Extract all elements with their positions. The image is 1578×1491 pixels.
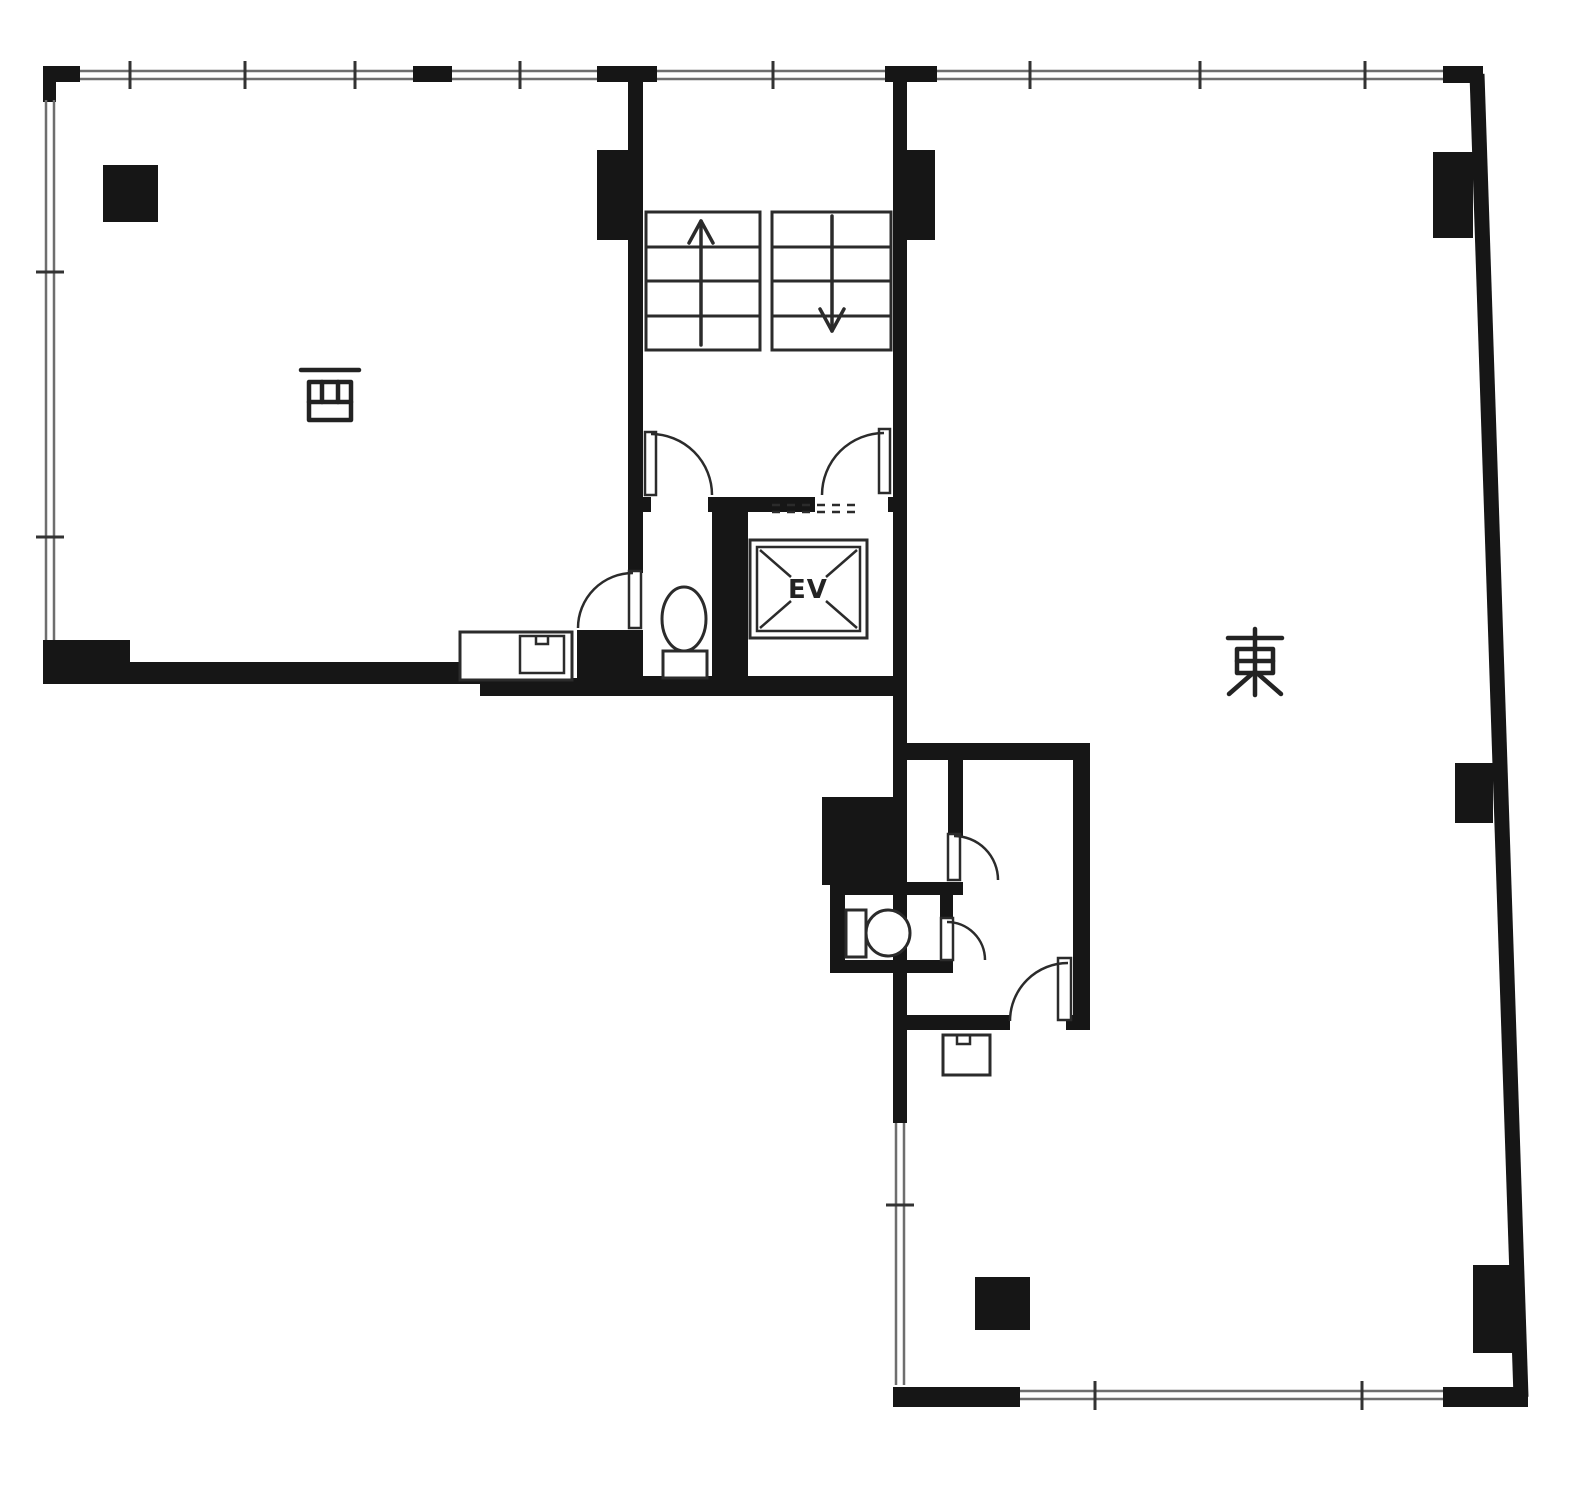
door-annex-main: [1010, 958, 1071, 1021]
toilet-annex-icon: [846, 910, 910, 957]
toilet-bowl: [866, 910, 910, 956]
wall-segment: [43, 66, 56, 102]
wall-segment: [948, 760, 963, 836]
wall-pier: [885, 66, 937, 82]
wall-segment: [1073, 743, 1090, 1030]
door-leaf: [879, 429, 890, 493]
wall-segment: [830, 885, 845, 973]
door-east-hall: [822, 429, 890, 495]
elevator-label: EV: [788, 575, 828, 605]
wall-segment: [643, 497, 651, 512]
wall-segment: [1443, 1387, 1528, 1407]
door-west-unit-entry: [578, 571, 641, 628]
toilet-tank: [846, 910, 866, 957]
wall-segment: [708, 497, 815, 512]
column: [1455, 763, 1493, 823]
elevator-cross-line: [760, 550, 791, 577]
elevator-hall: EV: [460, 505, 867, 680]
wall-segment: [830, 960, 953, 973]
stair-down-arrow-icon: [820, 216, 844, 331]
wall-segment: [43, 662, 480, 684]
structural-columns: [103, 152, 1520, 1353]
door-leaf: [629, 571, 641, 628]
wall-segment: [830, 882, 963, 895]
column: [822, 797, 907, 885]
kanji-stroke: [1229, 673, 1253, 694]
elevator-cross-line: [826, 601, 857, 628]
door-swing-arc: [651, 434, 712, 495]
wall-segment: [888, 497, 907, 512]
door-west-hall: [645, 432, 712, 495]
staircase: [643, 212, 907, 512]
column: [1433, 152, 1473, 238]
door-leaf: [1058, 958, 1071, 1020]
column: [975, 1277, 1030, 1330]
east-sanitary-annex: [822, 743, 1090, 1075]
west-room-label: 西: [301, 370, 359, 420]
wall-pier: [597, 66, 657, 82]
sink-basin: [943, 1035, 990, 1075]
wall-segment: [628, 66, 643, 573]
elevator-cab: EV: [750, 540, 867, 638]
door-swing-arc: [578, 573, 633, 628]
door-leaf: [948, 834, 960, 880]
wall-segment: [893, 66, 907, 797]
exterior-walls: [43, 66, 1528, 1407]
door-annex-upper: [948, 834, 998, 880]
wall-segment: [893, 1387, 1020, 1407]
door-swing-arc: [822, 433, 884, 495]
stair-up-arrow-icon: [689, 221, 713, 345]
hand-wash-sink-icon: [943, 1035, 990, 1075]
column: [597, 150, 628, 240]
kanji-stroke: [1257, 673, 1281, 694]
column: [577, 630, 643, 684]
wall-segment: [712, 512, 748, 680]
column: [1473, 1265, 1520, 1353]
toilet-tank: [663, 651, 707, 678]
door-leaf: [941, 918, 953, 960]
column: [907, 150, 935, 240]
floor-plan-drawing: EV: [0, 0, 1578, 1491]
toilet-core-icon: [662, 587, 707, 678]
wall-pier: [413, 66, 452, 82]
floor-plan-page: EV: [0, 0, 1578, 1491]
door-leaf: [645, 432, 656, 495]
door-annex-toilet: [941, 918, 985, 960]
wall-segment: [1477, 74, 1521, 1397]
wall-segment: [898, 743, 1088, 760]
windows: [36, 61, 1443, 1410]
counter-sink-icon: [460, 632, 572, 680]
elevator-cross-line: [760, 601, 791, 628]
toilet-bowl: [662, 587, 706, 651]
east-room-label: 東: [1228, 629, 1282, 695]
wall-segment: [893, 1015, 1010, 1030]
column: [103, 165, 158, 222]
elevator-cross-line: [826, 550, 857, 577]
